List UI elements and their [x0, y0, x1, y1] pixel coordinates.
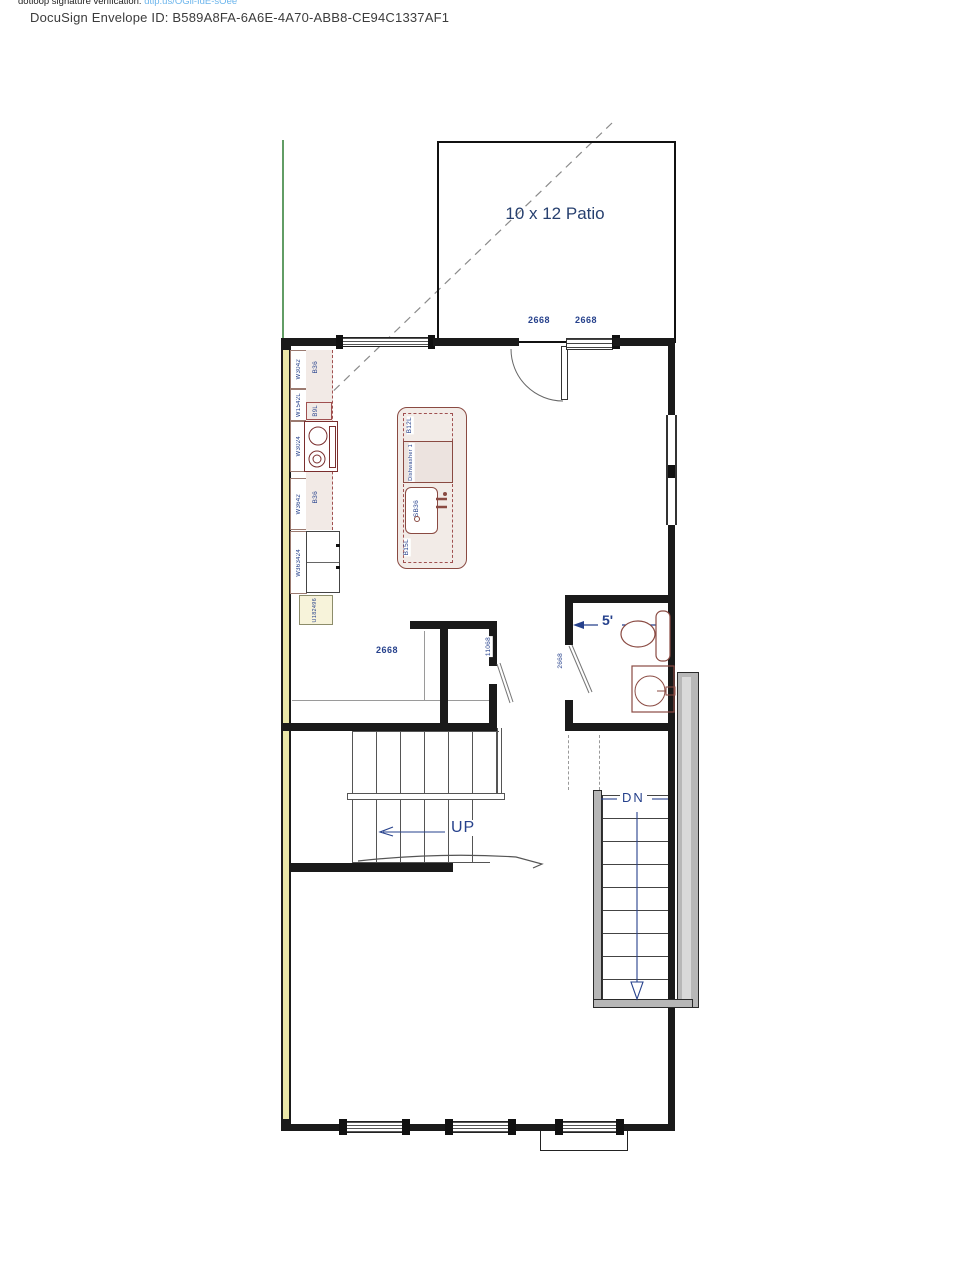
toilet-tank-icon: [656, 611, 670, 661]
sink-drain-icon: [415, 517, 420, 522]
stair-handrail-curve: [358, 855, 542, 868]
down-arrow-head-icon: [631, 982, 643, 999]
vanity-icon: [632, 666, 674, 712]
closet-door-leaf: [497, 664, 510, 703]
bath-door-leaf-2: [572, 645, 592, 692]
bath-dim-arrow-left: [573, 621, 584, 629]
bath-door-leaf: [569, 646, 589, 693]
plan-overlay: [0, 0, 978, 1265]
burner-icon-2-inner: [313, 455, 321, 463]
burner-icon-1: [309, 427, 327, 445]
toilet-bowl-icon: [621, 621, 655, 647]
floor-plan-page: dotloop signature verification: dtlp.us/…: [0, 0, 978, 1265]
entry-door-swing-arc: [511, 349, 563, 401]
sink-faucet-dot: [443, 492, 447, 496]
closet-door-leaf-2: [500, 663, 513, 702]
burner-icon-2: [309, 451, 325, 467]
